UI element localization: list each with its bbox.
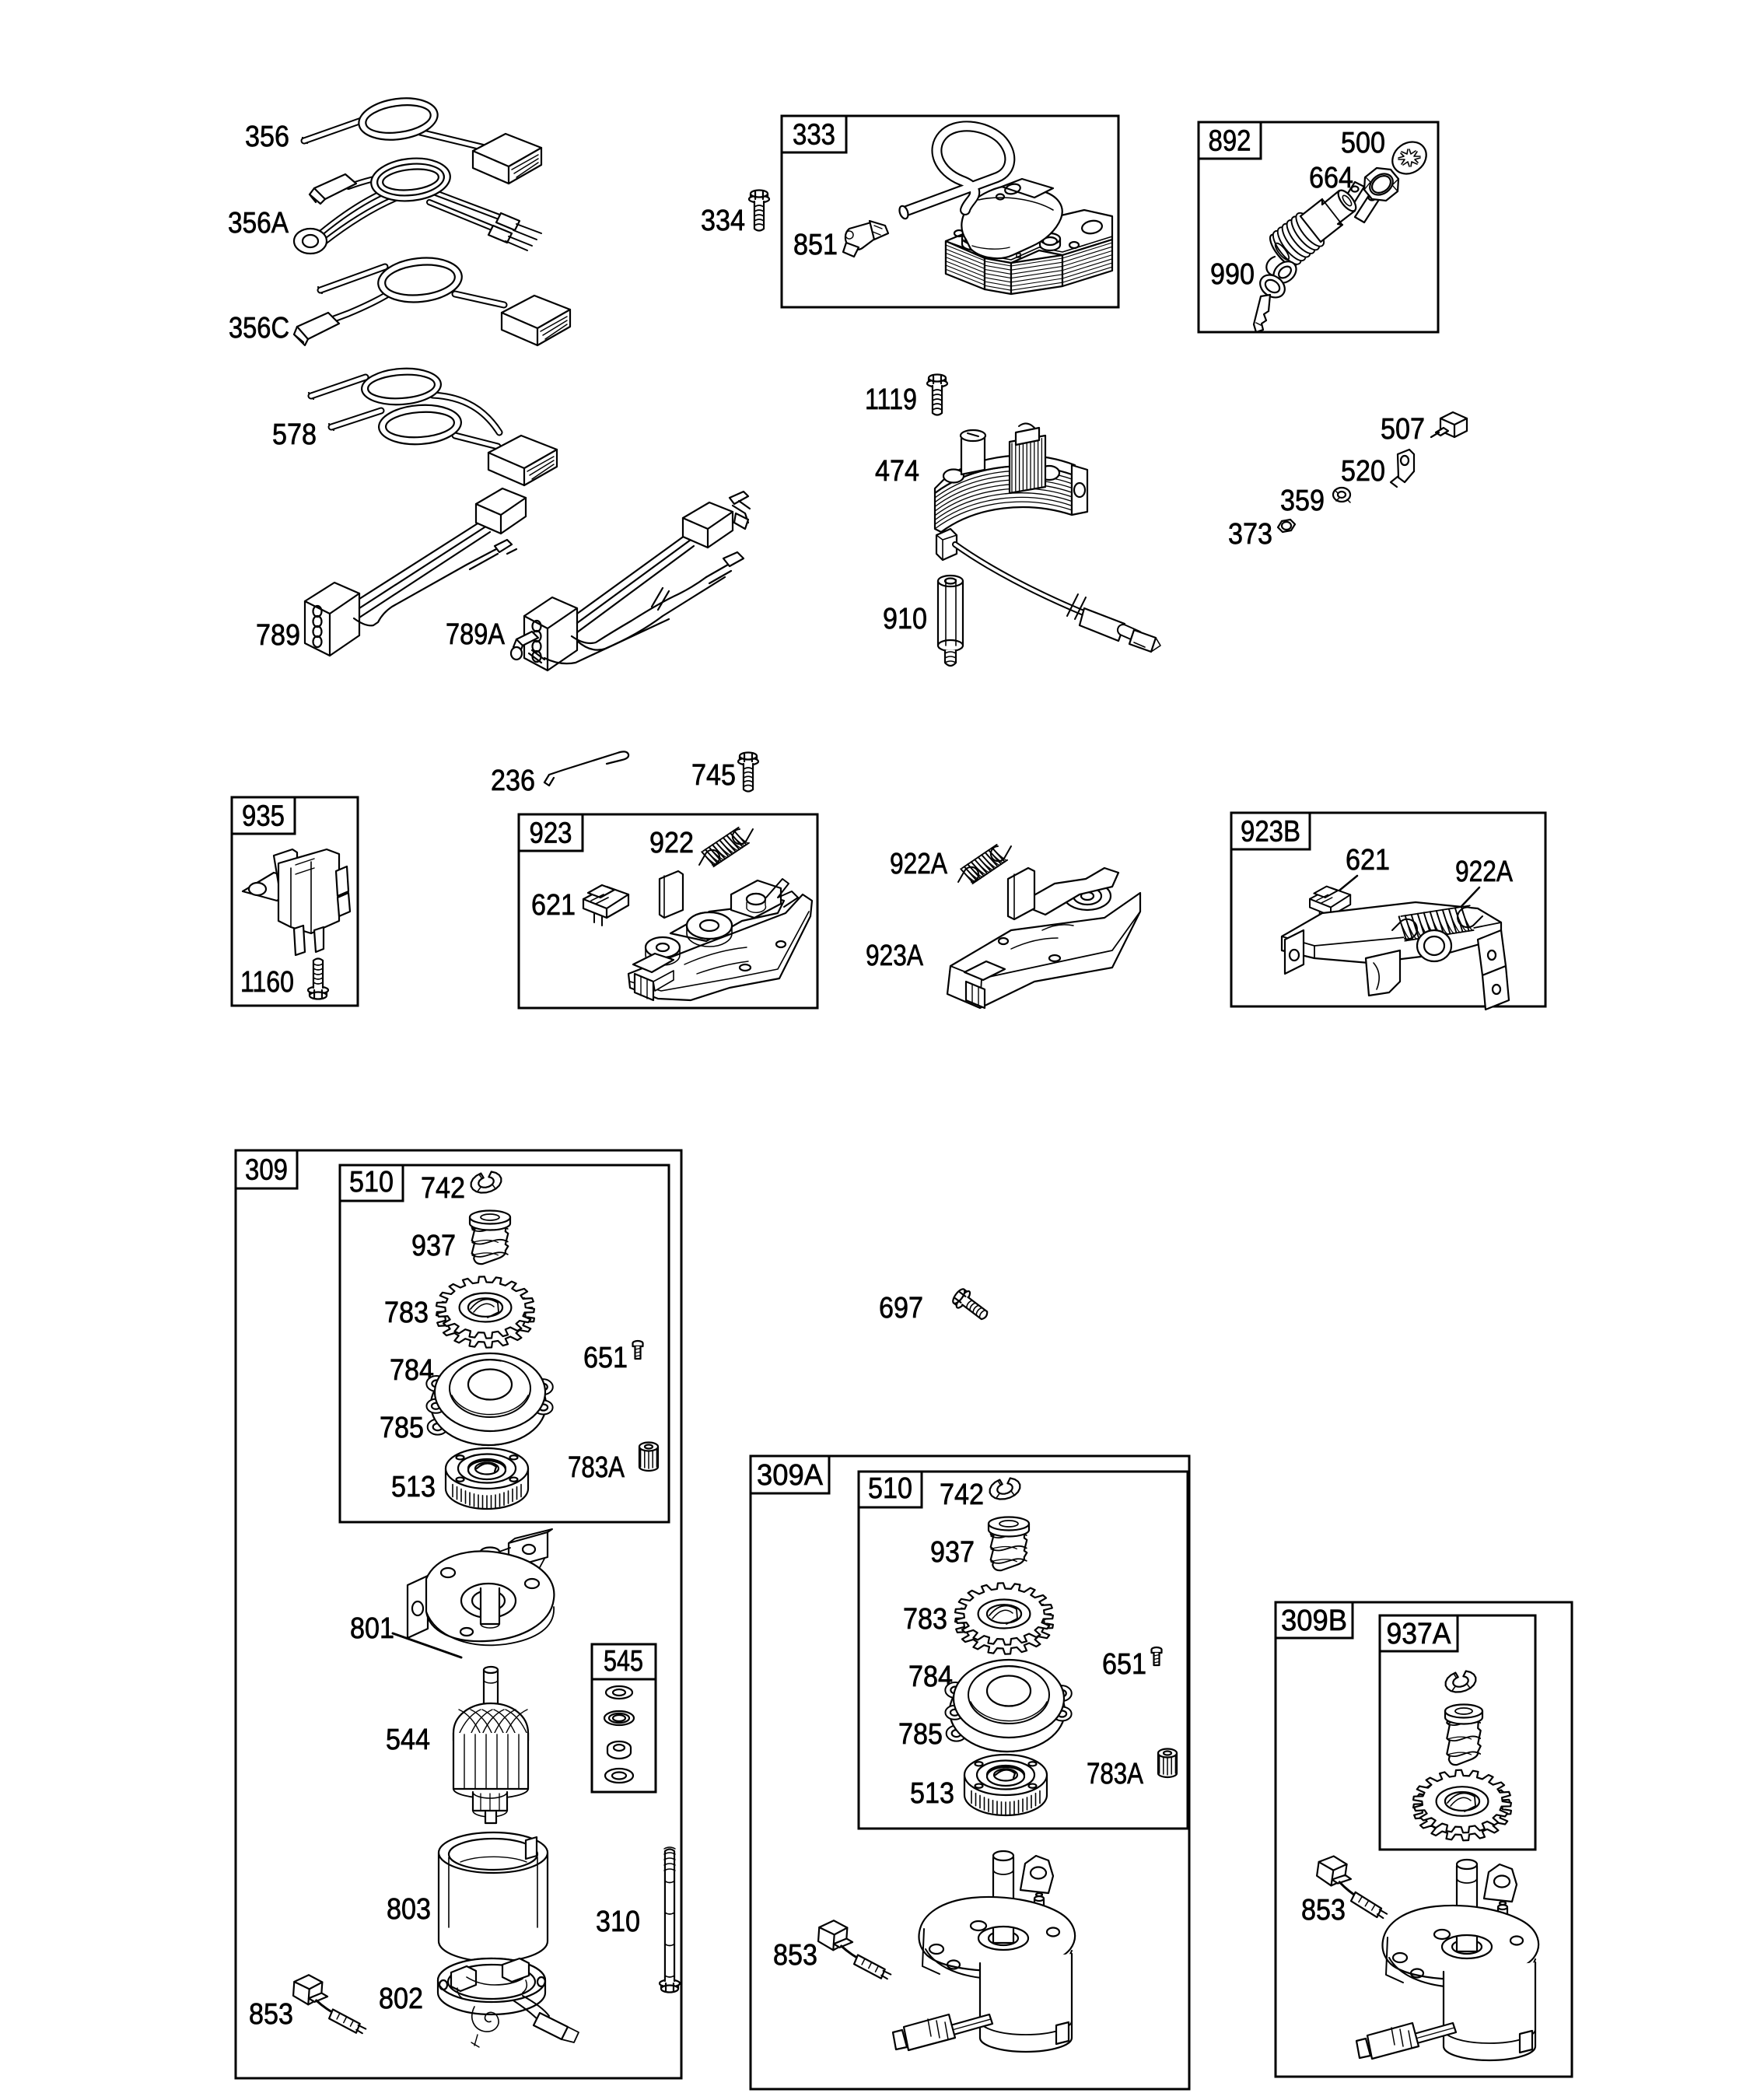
svg-text:785: 785 [380, 1412, 424, 1444]
svg-text:935: 935 [242, 800, 285, 833]
svg-text:356: 356 [245, 121, 289, 153]
svg-text:742: 742 [421, 1172, 465, 1205]
svg-text:783: 783 [384, 1297, 429, 1329]
svg-text:851: 851 [793, 229, 838, 261]
svg-text:474: 474 [875, 455, 919, 488]
svg-text:910: 910 [883, 603, 927, 635]
svg-text:990: 990 [1210, 258, 1255, 291]
svg-text:545: 545 [604, 1645, 643, 1678]
svg-text:621: 621 [1346, 844, 1390, 877]
svg-text:507: 507 [1381, 413, 1425, 446]
svg-text:309: 309 [245, 1154, 288, 1187]
svg-text:513: 513 [391, 1471, 436, 1503]
svg-text:236: 236 [491, 765, 535, 797]
svg-text:923: 923 [530, 817, 572, 850]
svg-text:1119: 1119 [865, 383, 917, 416]
svg-text:664: 664 [1309, 162, 1353, 194]
svg-text:651: 651 [583, 1342, 628, 1374]
svg-text:853: 853 [249, 1998, 293, 2031]
svg-text:621: 621 [531, 889, 576, 922]
svg-text:309B: 309B [1281, 1605, 1347, 1637]
svg-text:544: 544 [386, 1724, 430, 1756]
svg-text:520: 520 [1341, 455, 1385, 488]
svg-text:359: 359 [1280, 485, 1325, 517]
svg-text:373: 373 [1228, 518, 1272, 551]
svg-text:789A: 789A [446, 618, 506, 651]
svg-text:937A: 937A [1387, 1618, 1452, 1650]
svg-text:333: 333 [793, 119, 835, 152]
svg-text:309A: 309A [757, 1459, 824, 1492]
svg-text:803: 803 [387, 1893, 431, 1926]
svg-text:697: 697 [879, 1292, 923, 1325]
svg-text:356A: 356A [228, 207, 289, 240]
svg-text:802: 802 [379, 1983, 423, 2015]
svg-text:922A: 922A [1455, 856, 1514, 888]
svg-text:745: 745 [691, 759, 736, 792]
svg-text:853: 853 [773, 1939, 817, 1972]
svg-text:356C: 356C [229, 312, 289, 345]
svg-text:510: 510 [349, 1166, 394, 1199]
svg-text:783A: 783A [568, 1451, 625, 1484]
svg-text:789: 789 [256, 619, 300, 652]
svg-text:853: 853 [1301, 1894, 1346, 1927]
svg-text:578: 578 [272, 418, 317, 451]
svg-text:500: 500 [1341, 127, 1385, 159]
svg-text:892: 892 [1209, 125, 1251, 158]
svg-text:334: 334 [701, 205, 745, 237]
svg-text:1160: 1160 [240, 966, 294, 999]
svg-text:922A: 922A [890, 848, 948, 880]
svg-text:922: 922 [649, 827, 694, 859]
svg-text:937: 937 [411, 1230, 456, 1262]
svg-text:923A: 923A [866, 940, 924, 972]
svg-text:801: 801 [350, 1612, 394, 1645]
svg-text:310: 310 [596, 1906, 640, 1938]
svg-text:923B: 923B [1241, 816, 1300, 849]
